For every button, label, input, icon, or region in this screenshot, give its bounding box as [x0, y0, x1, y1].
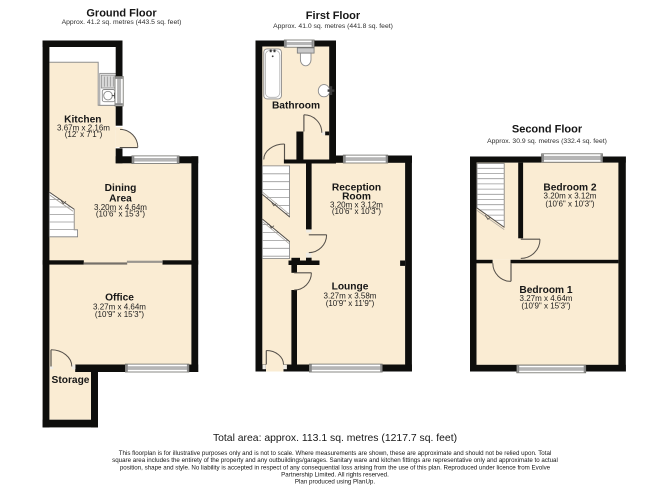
- svg-text:square area includes the entir: square area includes the entirety of the…: [112, 457, 558, 464]
- svg-text:(10'9" x 15'3"): (10'9" x 15'3"): [95, 310, 145, 319]
- svg-text:(10'6" x 10'3"): (10'6" x 10'3"): [545, 199, 595, 208]
- svg-text:(10'6" x 10'3"): (10'6" x 10'3"): [332, 207, 382, 216]
- svg-text:Bathroom: Bathroom: [272, 101, 320, 112]
- svg-text:Total area: approx. 113.1 sq.: Total area: approx. 113.1 sq. metres (12…: [213, 433, 457, 444]
- svg-text:(10'6" x 15'3"): (10'6" x 15'3"): [96, 210, 146, 219]
- svg-text:position, shape and style. No: position, shape and style. No liability …: [120, 464, 551, 471]
- svg-text:(12' x 7'1"): (12' x 7'1"): [65, 130, 103, 139]
- svg-text:Second Floor: Second Floor: [512, 123, 583, 135]
- svg-text:This floorplan is for illustra: This floorplan is for illustrative purpo…: [119, 450, 552, 457]
- svg-text:Approx. 41.2 sq. metres (443.5: Approx. 41.2 sq. metres (443.5 sq. feet): [62, 19, 182, 26]
- svg-text:(10'9" x 11'9"): (10'9" x 11'9"): [326, 299, 375, 308]
- svg-text:(10'9" x 15'3"): (10'9" x 15'3"): [521, 301, 571, 310]
- svg-text:Approx. 30.9 sq. metres (332.4: Approx. 30.9 sq. metres (332.4 sq. feet): [487, 138, 607, 145]
- svg-text:Storage: Storage: [52, 375, 90, 386]
- svg-text:Plan produced using PlanUp.: Plan produced using PlanUp.: [295, 479, 375, 486]
- svg-text:First Floor: First Floor: [306, 10, 361, 22]
- svg-text:Approx. 41.0 sq. metres (441.8: Approx. 41.0 sq. metres (441.8 sq. feet): [273, 23, 393, 30]
- svg-text:Ground Floor: Ground Floor: [86, 8, 157, 20]
- svg-text:Partnership Limited. All right: Partnership Limited. All rights reserved…: [281, 471, 389, 478]
